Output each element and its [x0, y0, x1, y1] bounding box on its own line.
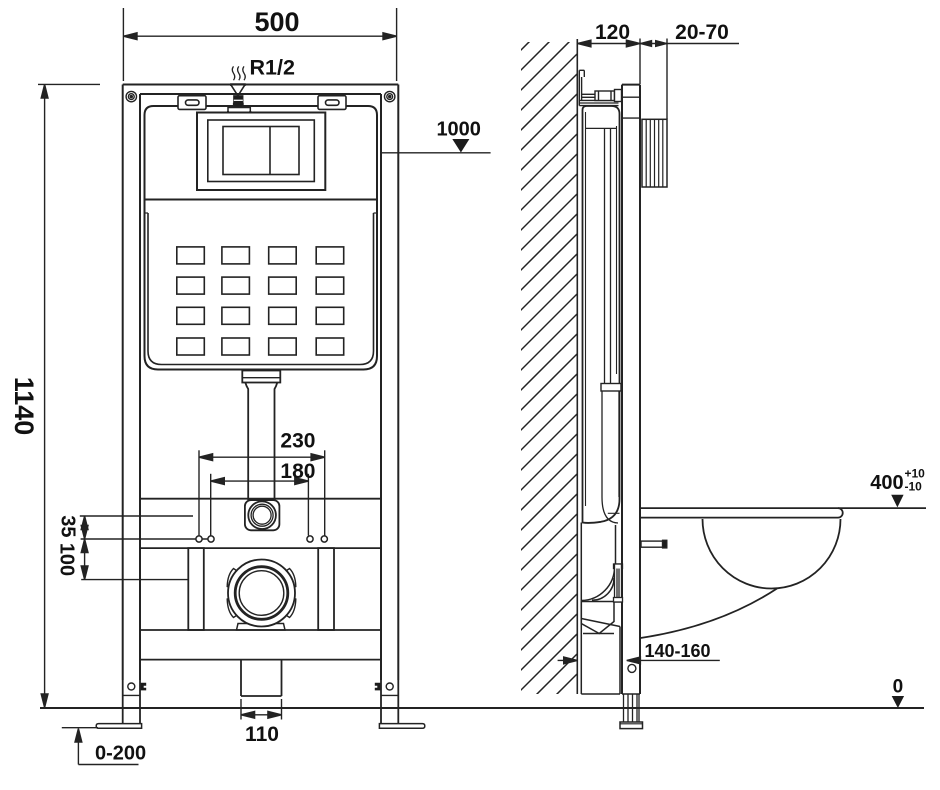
- svg-text:-10: -10: [905, 479, 923, 493]
- svg-text:100: 100: [56, 543, 78, 576]
- svg-text:R1/2: R1/2: [250, 56, 295, 80]
- svg-text:180: 180: [280, 460, 315, 483]
- svg-text:120: 120: [595, 21, 630, 44]
- svg-text:35: 35: [57, 515, 79, 537]
- svg-text:0: 0: [893, 677, 904, 698]
- svg-text:0-200: 0-200: [95, 743, 146, 765]
- svg-text:20-70: 20-70: [675, 21, 729, 44]
- svg-text:1140: 1140: [9, 377, 39, 436]
- svg-text:140-160: 140-160: [645, 641, 711, 661]
- svg-text:110: 110: [245, 723, 279, 746]
- svg-text:400: 400: [870, 472, 903, 494]
- svg-text:1000: 1000: [436, 119, 481, 141]
- svg-text:230: 230: [280, 430, 315, 453]
- svg-text:500: 500: [254, 7, 299, 37]
- svg-text:+10: +10: [905, 467, 926, 481]
